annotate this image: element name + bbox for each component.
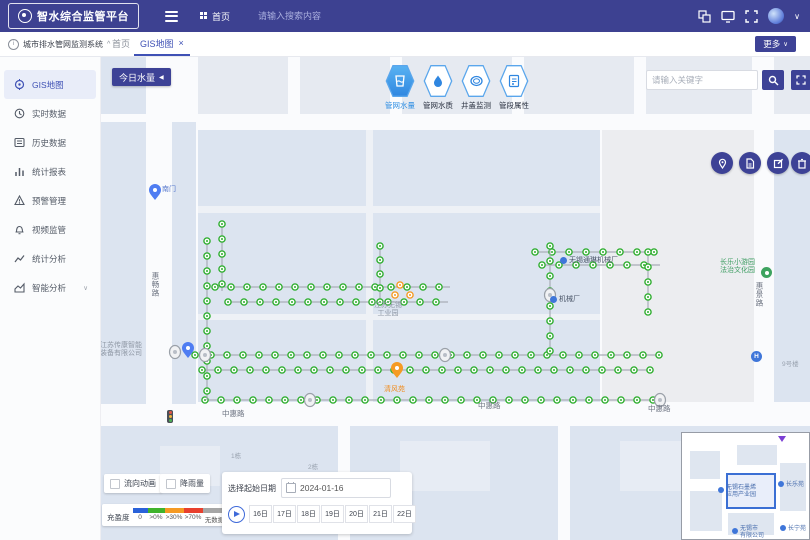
flow-animation-label: 流向动画 (124, 478, 156, 489)
legend-item: >30% (165, 508, 184, 521)
chevron-down-icon[interactable]: ∨ (794, 12, 800, 21)
overview-minimap[interactable]: 无锡石墨烯 应用产业园 长乐苑 长宁苑 无锡市 有限公司 (681, 432, 810, 540)
history-icon (14, 137, 25, 148)
rainfall-toggle[interactable]: 降雨量 (160, 474, 210, 493)
start-date-input[interactable]: 2024-01-16 (281, 478, 391, 498)
layer-label: 井盖监测 (461, 100, 491, 111)
road-label-bottom: 中惠路 (648, 403, 671, 414)
layer-button-pipe-attributes[interactable]: 管段属性 (496, 64, 532, 111)
avatar[interactable] (768, 8, 784, 24)
layer-button-water-level[interactable]: 管网水量 (382, 64, 418, 111)
poi-pin-icon (550, 296, 557, 303)
edit-tool-button[interactable] (767, 152, 789, 174)
layer-button-manhole-monitoring[interactable]: 井盖监测 (458, 64, 494, 111)
legend-item: >70% (184, 508, 203, 521)
playback-panel: 选择起始日期 2024-01-16 16日 17日 18日 19日 20日 21… (222, 472, 412, 534)
map-block (737, 445, 777, 465)
sidebar-item-label: 智能分析 (32, 282, 66, 294)
poi-label-factory2: 机械厂 (550, 294, 580, 304)
building-label-2: 2栋 (308, 461, 318, 471)
map-search-input[interactable] (646, 70, 758, 90)
minimap-label-graphene-1: 无锡石墨烯 (726, 485, 756, 492)
day-button-19[interactable]: 19日 (321, 505, 344, 523)
layer-toolbar: 管网水量 管网水质 井盖监测 管段属性 (382, 64, 532, 111)
tab-gis-label: GIS地图 (140, 37, 174, 50)
map-canvas[interactable]: 惠畅路 惠景路 中惠路 中惠路 中惠路 南门 江苏无锡 工业园 无锡通琳机械厂 … (100, 56, 810, 540)
sidebar-item-label: 统计分析 (32, 253, 66, 265)
water-cup-icon (393, 74, 407, 88)
sidebar-item-statistic-analysis[interactable]: 统计分析 (4, 244, 96, 273)
sidebar-item-label: 视频监管 (32, 224, 66, 236)
delete-tool-button[interactable] (791, 152, 810, 174)
minimap-pin-icon (718, 487, 724, 493)
rainfall-label: 降雨量 (180, 478, 204, 489)
date-label: 选择起始日期 (228, 483, 276, 494)
minimap-marker-icon (778, 436, 786, 442)
layer-label: 管网水量 (385, 100, 415, 111)
area-chart-icon (14, 282, 25, 293)
minimap-pin-icon (778, 481, 784, 487)
chevron-down-icon: ∨ (783, 40, 788, 48)
fullscreen-icon[interactable] (745, 10, 758, 23)
date-value: 2024-01-16 (300, 483, 343, 493)
sidebar-item-history-data[interactable]: 历史数据 (4, 128, 96, 157)
minimap-label-company-2: 有限公司 (740, 533, 764, 540)
calendar-icon (286, 483, 296, 493)
poi-pin-icon (560, 257, 567, 264)
poi-label-qingfeng: 清风苑 (384, 384, 405, 394)
road-label-bottom: 中惠路 (222, 408, 245, 419)
building-label-1: 1栋 (231, 450, 241, 460)
edit-icon (773, 158, 784, 169)
map-block (690, 451, 720, 479)
sidebar-item-label: 实时数据 (32, 108, 66, 120)
system-title[interactable]: i 城市排水管网监测系统 ^ (8, 32, 110, 56)
poi-label-industrial-1: 江苏无锡 (374, 302, 402, 310)
pin-icon (717, 158, 728, 169)
minimap-pin-icon (780, 525, 786, 531)
legend-swatch (184, 508, 203, 513)
bell-icon (14, 224, 25, 235)
sidebar-item-intelligent-analysis[interactable]: 智能分析 ∨ (4, 273, 96, 302)
tab-home-label: 首页 (112, 37, 130, 50)
flow-animation-toggle[interactable]: 流向动画 (104, 474, 162, 493)
locate-tool-button[interactable] (711, 152, 733, 174)
language-icon[interactable] (698, 10, 711, 23)
attribute-card-icon (507, 74, 521, 88)
monitor-icon[interactable] (721, 10, 735, 23)
map-search-button[interactable] (762, 70, 784, 90)
road-label-left: 惠畅路 (150, 272, 161, 298)
layer-label: 管网水质 (423, 100, 453, 111)
poi-label-company-2: 装备有限公司 (100, 350, 142, 358)
search-icon (768, 75, 779, 86)
day-button-20[interactable]: 20日 (345, 505, 368, 523)
nav-home[interactable]: 首页 (200, 10, 230, 23)
legend-item: >0% (148, 508, 165, 521)
logo-icon (18, 9, 32, 23)
sidebar-item-video-monitoring[interactable]: 视频监管 (4, 215, 96, 244)
poi-label-company-1: 江苏传康智能 (100, 342, 142, 350)
legend-swatch (148, 508, 165, 513)
sidebar-item-statistic-report[interactable]: 统计报表 (4, 157, 96, 186)
tab-home[interactable]: 首页 (106, 32, 136, 54)
nav-home-label: 首页 (212, 10, 230, 23)
tab-bar: i 城市排水管网监测系统 ^ 首页 GIS地图 × 更多 ∨ (0, 32, 810, 57)
fullness-legend: 充盈度 0 >0% >30% >70% 无数据 (102, 504, 232, 526)
app-logo: 智水综合监管平台 (8, 3, 139, 29)
minimap-label-changningyuan: 长宁苑 (788, 526, 806, 533)
map-search-group (646, 70, 810, 90)
bus-stop-icon: H (751, 351, 762, 362)
poi-label-factory: 无锡通琳机械厂 (560, 255, 618, 265)
more-button[interactable]: 更多 ∨ (755, 36, 796, 52)
alert-icon (14, 195, 25, 206)
map-block (690, 491, 722, 531)
minimap-pin-icon (732, 528, 738, 534)
manhole-icon (469, 74, 484, 88)
legend-swatch (165, 508, 184, 513)
sidebar-item-label: 统计报表 (32, 166, 66, 178)
legend-swatch (133, 508, 148, 513)
sidebar: GIS地图 实时数据 历史数据 统计报表 预警管理 视频监管 统计分析 智能分析… (0, 56, 101, 540)
checkbox-icon[interactable] (110, 479, 120, 489)
more-label: 更多 (763, 38, 780, 50)
home-grid-icon (200, 12, 208, 20)
legend-title: 充盈度 (107, 512, 130, 523)
road-label-bottom: 中惠路 (478, 400, 501, 411)
close-icon[interactable]: × (179, 38, 184, 48)
app-header: 智水综合监管平台 首页 ∨ (0, 0, 810, 32)
expand-caret-icon: ∨ (83, 284, 88, 292)
sidebar-item-label: GIS地图 (32, 79, 64, 91)
bar-chart-icon (14, 166, 25, 177)
line-chart-icon (14, 253, 25, 264)
trash-icon (797, 158, 807, 169)
checkbox-icon[interactable] (166, 479, 176, 489)
poi-label-south-gate: 南门 (162, 184, 176, 194)
map-fullscreen-button[interactable] (791, 70, 810, 90)
global-search-input[interactable] (256, 10, 370, 22)
poi-label-park-1: 长乐小游园 (720, 259, 755, 267)
report-tool-button[interactable] (739, 152, 761, 174)
road-label-right: 惠景路 (754, 282, 765, 308)
minimap-label-graphene-2: 应用产业园 (726, 492, 756, 499)
app-title: 智水综合监管平台 (37, 8, 129, 24)
day-button-22[interactable]: 22日 (393, 505, 416, 523)
info-icon: i (8, 39, 19, 50)
file-icon (745, 158, 755, 169)
day-button-17[interactable]: 17日 (273, 505, 296, 523)
poi-label-park-2: 法治文化园 (720, 267, 755, 275)
poi-label-industrial-2: 工业园 (374, 310, 402, 318)
expand-icon (796, 75, 806, 85)
system-title-label: 城市排水管网监测系统 (23, 39, 103, 50)
menu-toggle-icon[interactable] (165, 8, 178, 24)
day-button-16[interactable]: 16日 (249, 505, 272, 523)
sidebar-item-label: 预警管理 (32, 195, 66, 207)
sidebar-item-realtime-data[interactable]: 实时数据 (4, 99, 96, 128)
sidebar-item-gis-map[interactable]: GIS地图 (4, 70, 96, 99)
legend-item: 0 (133, 508, 148, 521)
today-water-button[interactable]: 今日水量 ◀ (112, 68, 171, 86)
park-icon (761, 267, 772, 278)
day-button-18[interactable]: 18日 (297, 505, 320, 523)
clock-icon (14, 108, 25, 119)
minimap-label-changleyuan: 长乐苑 (786, 482, 804, 489)
day-button-21[interactable]: 21日 (369, 505, 392, 523)
droplet-icon (431, 74, 445, 88)
layer-button-water-quality[interactable]: 管网水质 (420, 64, 456, 111)
building-label-9: 9号楼 (782, 358, 799, 368)
sidebar-item-warning-management[interactable]: 预警管理 (4, 186, 96, 215)
day-buttons: 16日 17日 18日 19日 20日 21日 22日 (249, 505, 416, 523)
caret-left-icon: ◀ (159, 74, 164, 81)
gis-map-icon (14, 79, 25, 90)
tab-gis[interactable]: GIS地图 × (134, 32, 190, 56)
sidebar-item-label: 历史数据 (32, 137, 66, 149)
today-water-label: 今日水量 (119, 71, 155, 84)
layer-label: 管段属性 (499, 100, 529, 111)
traffic-light-icon (167, 410, 173, 423)
play-button[interactable] (228, 506, 245, 523)
